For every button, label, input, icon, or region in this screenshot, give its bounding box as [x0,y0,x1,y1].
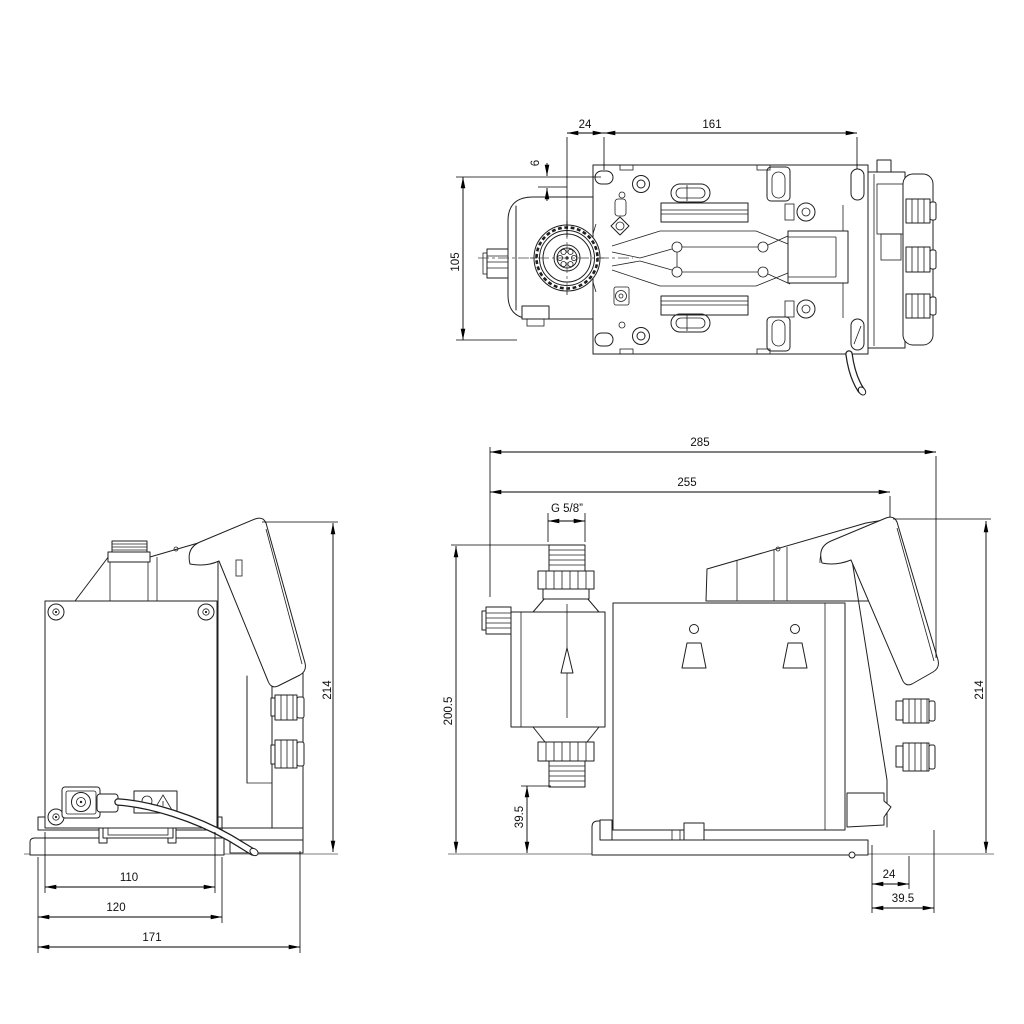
outlet-thread [549,761,585,787]
dim-label-255: 255 [677,477,696,489]
dim-label-105: 105 [450,252,462,271]
valve-knobs-right [896,699,935,771]
side-view-right [482,517,938,858]
dim-label-171: 171 [142,932,161,944]
top-port-flange [108,552,150,562]
inlet-thread [549,545,585,571]
terminal-box [788,231,848,283]
dim-label-120: 120 [106,902,125,914]
dim-label-161: 161 [702,119,721,131]
dim-label-200-5: 200.5 [443,697,455,726]
dim-label-214-left: 214 [322,680,334,700]
deaeration-knob [486,607,511,634]
deaeration-knob-top [483,249,508,278]
dim-label-214-right: 214 [974,680,986,700]
pump-body [613,603,845,830]
dim-label-6: 6 [530,160,542,166]
dim-label-24-bottom: 24 [883,869,896,881]
top-assembly-left [75,541,205,601]
side-view-left [30,518,305,857]
dim-label-39-5-bottom: 39.5 [892,893,914,905]
power-cable-top [849,354,867,396]
dim-label-285: 285 [690,437,709,449]
connector-knobs-top [906,199,936,318]
base-plate-left [30,838,224,855]
valve-knobs-left [271,695,304,768]
motor-gland [522,306,549,319]
dim-label-thread: G 5/8” [551,503,583,515]
dosing-head [482,545,605,787]
dimensional-drawing: 24 161 6 105 [0,0,1024,1024]
wall-bracket [847,793,891,827]
dim-label-110: 110 [120,872,138,884]
dim-label-39-5-inlet: 39.5 [514,806,526,828]
head-cylinder [511,612,605,727]
dim-label-24-top: 24 [579,119,592,131]
